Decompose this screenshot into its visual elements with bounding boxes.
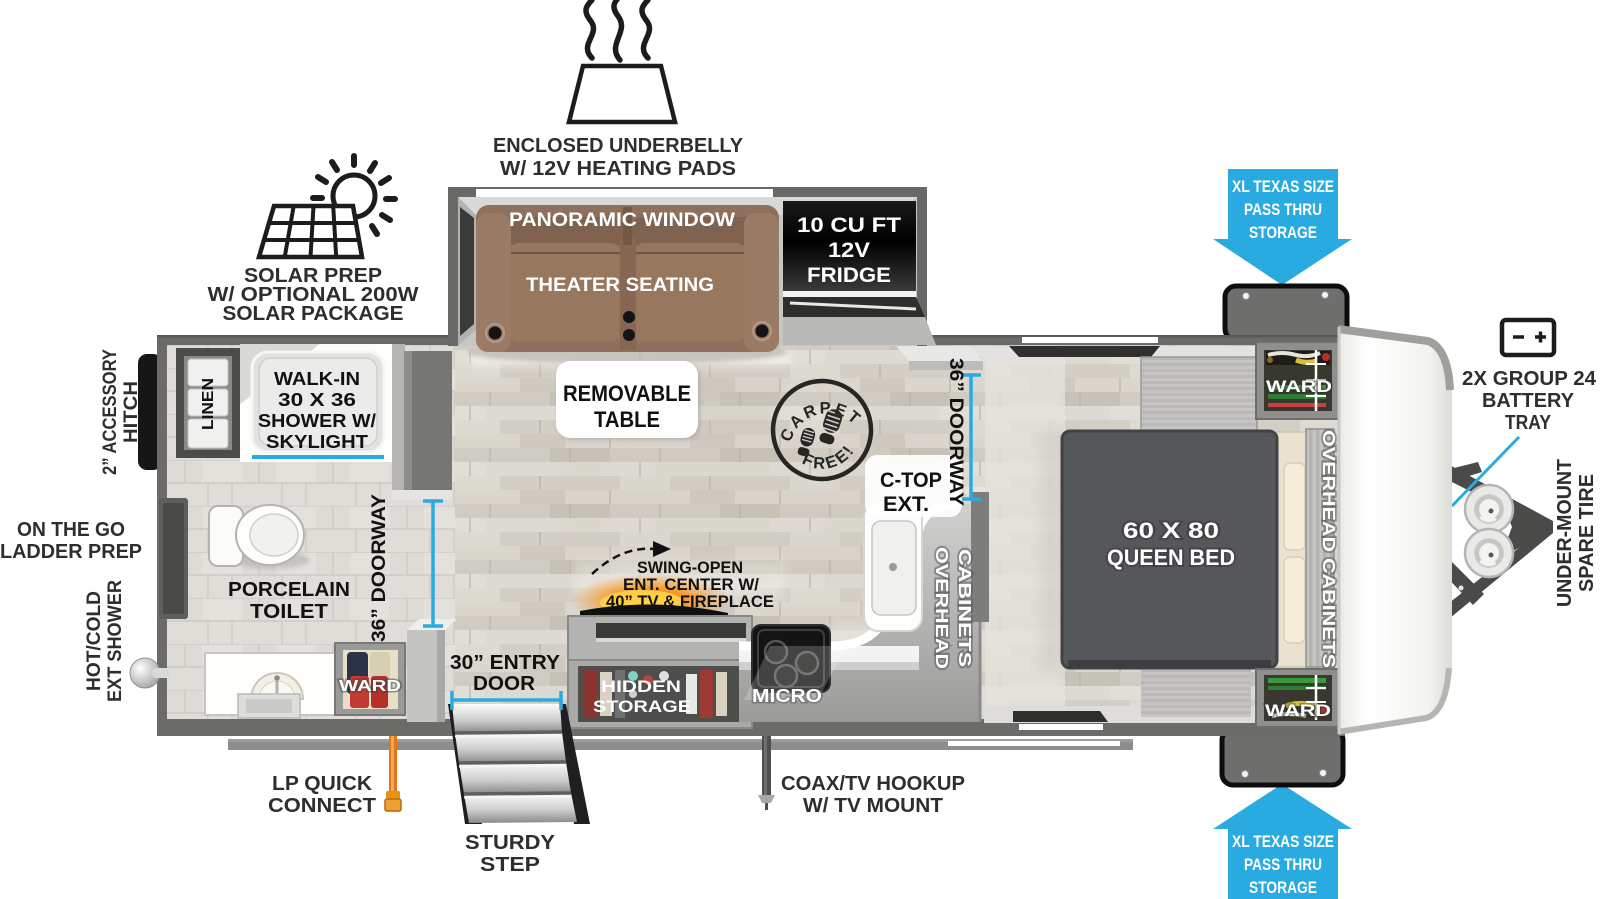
- svg-text:12V: 12V: [828, 239, 870, 262]
- svg-text:BATTERY: BATTERY: [1482, 390, 1575, 412]
- svg-text:WALK-IN: WALK-IN: [274, 369, 360, 389]
- svg-text:MICRO: MICRO: [752, 686, 822, 706]
- svg-text:UNDER-MOUNT: UNDER-MOUNT: [1554, 459, 1576, 607]
- svg-text:WARD: WARD: [1265, 701, 1331, 720]
- svg-text:SOLAR PACKAGE: SOLAR PACKAGE: [223, 303, 404, 325]
- svg-text:EXT SHOWER: EXT SHOWER: [105, 580, 126, 702]
- svg-text:OVERHEAD CABINETS: OVERHEAD CABINETS: [1319, 430, 1339, 668]
- svg-text:HIDDEN: HIDDEN: [601, 677, 681, 696]
- svg-text:PANORAMIC WINDOW: PANORAMIC WINDOW: [509, 210, 735, 231]
- svg-text:W/ TV MOUNT: W/ TV MOUNT: [803, 795, 943, 817]
- svg-text:PASS THRU: PASS THRU: [1244, 855, 1322, 874]
- svg-text:WARD: WARD: [1266, 377, 1332, 396]
- svg-text:LP QUICK: LP QUICK: [272, 773, 373, 795]
- svg-text:60 X 80: 60 X 80: [1123, 518, 1219, 543]
- svg-text:SPARE TIRE: SPARE TIRE: [1576, 474, 1598, 592]
- svg-text:40” TV & FIREPLACE: 40” TV & FIREPLACE: [606, 593, 774, 611]
- svg-text:ENCLOSED UNDERBELLY: ENCLOSED UNDERBELLY: [493, 135, 744, 157]
- svg-text:2” ACCESSORY: 2” ACCESSORY: [100, 349, 121, 475]
- svg-text:2X GROUP 24: 2X GROUP 24: [1462, 368, 1597, 390]
- svg-text:ENT. CENTER W/: ENT. CENTER W/: [623, 576, 759, 594]
- svg-text:DOOR: DOOR: [473, 673, 536, 695]
- svg-text:TRAY: TRAY: [1505, 412, 1552, 434]
- svg-text:PASS THRU: PASS THRU: [1244, 200, 1322, 219]
- svg-text:EXT.: EXT.: [883, 493, 929, 516]
- svg-text:REMOVABLE: REMOVABLE: [563, 381, 691, 406]
- svg-text:SHOWER W/: SHOWER W/: [258, 411, 376, 431]
- svg-text:30” ENTRY: 30” ENTRY: [450, 652, 561, 674]
- svg-text:30 X 36: 30 X 36: [278, 390, 356, 410]
- svg-text:10 CU FT: 10 CU FT: [797, 214, 901, 237]
- svg-text:LINEN: LINEN: [200, 378, 217, 430]
- svg-text:C-TOP: C-TOP: [880, 469, 942, 492]
- svg-text:36” DOORWAY: 36” DOORWAY: [369, 494, 390, 642]
- svg-text:STORAGE: STORAGE: [593, 697, 691, 716]
- svg-text:TABLE: TABLE: [594, 407, 660, 432]
- svg-text:W/ 12V HEATING PADS: W/ 12V HEATING PADS: [500, 158, 736, 180]
- svg-text:SKYLIGHT: SKYLIGHT: [266, 432, 368, 452]
- svg-text:XL TEXAS SIZE: XL TEXAS SIZE: [1232, 832, 1334, 851]
- svg-text:CABINETS: CABINETS: [955, 549, 975, 667]
- svg-text:STURDY: STURDY: [465, 832, 556, 854]
- svg-text:STORAGE: STORAGE: [1249, 878, 1317, 897]
- svg-text:TOILET: TOILET: [250, 601, 328, 623]
- svg-text:XL TEXAS SIZE: XL TEXAS SIZE: [1232, 177, 1334, 196]
- svg-text:STEP: STEP: [480, 854, 540, 876]
- svg-text:ON THE GO: ON THE GO: [17, 519, 125, 541]
- svg-text:FRIDGE: FRIDGE: [807, 264, 891, 287]
- svg-text:36” DOORWAY: 36” DOORWAY: [945, 358, 966, 506]
- svg-text:LADDER PREP: LADDER PREP: [0, 541, 142, 563]
- svg-text:CONNECT: CONNECT: [268, 795, 376, 817]
- svg-text:HOT/COLD: HOT/COLD: [84, 591, 105, 691]
- svg-text:PORCELAIN: PORCELAIN: [228, 579, 350, 601]
- svg-text:QUEEN BED: QUEEN BED: [1107, 545, 1235, 570]
- svg-text:SWING-OPEN: SWING-OPEN: [637, 559, 743, 577]
- svg-text:THEATER SEATING: THEATER SEATING: [526, 275, 714, 296]
- svg-text:OVERHEAD: OVERHEAD: [932, 547, 952, 669]
- svg-text:STORAGE: STORAGE: [1249, 223, 1317, 242]
- svg-text:WARD: WARD: [339, 678, 401, 695]
- svg-text:COAX/TV HOOKUP: COAX/TV HOOKUP: [781, 773, 965, 795]
